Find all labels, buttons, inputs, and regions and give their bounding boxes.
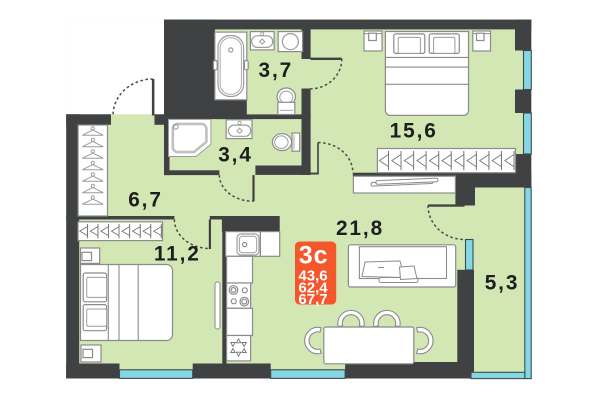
svg-text:3,4: 3,4 xyxy=(218,144,253,167)
svg-text:5,3: 5,3 xyxy=(485,272,520,295)
svg-text:11,2: 11,2 xyxy=(154,242,201,265)
svg-text:3,7: 3,7 xyxy=(258,59,293,82)
svg-text:6,7: 6,7 xyxy=(128,189,163,212)
svg-text:21,8: 21,8 xyxy=(336,217,384,240)
svg-text:15,6: 15,6 xyxy=(390,120,438,143)
svg-text:3с: 3с xyxy=(299,242,329,270)
svg-text:67,7: 67,7 xyxy=(298,291,327,308)
